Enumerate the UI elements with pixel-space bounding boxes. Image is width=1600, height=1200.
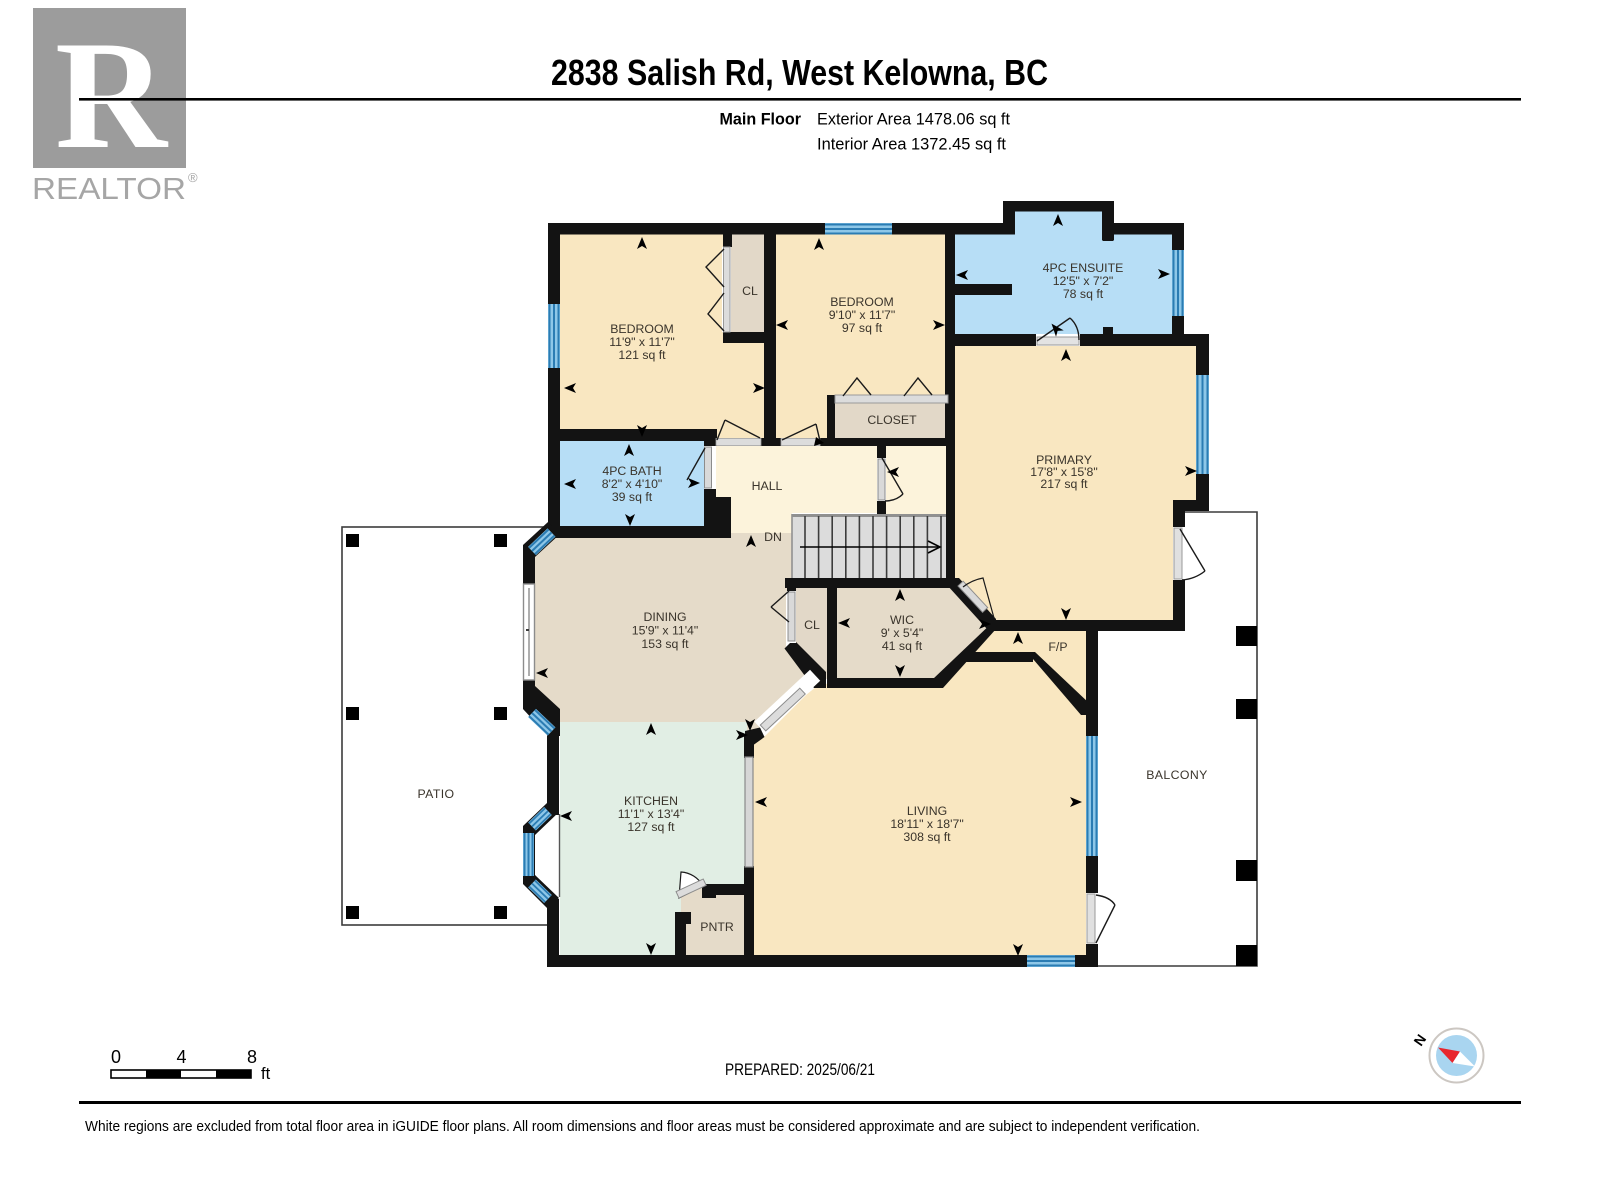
svg-text:DINING: DINING	[643, 610, 686, 624]
svg-text:HALL: HALL	[752, 479, 783, 493]
svg-text:LIVING: LIVING	[907, 804, 947, 818]
svg-text:97 sq ft: 97 sq ft	[842, 321, 883, 335]
svg-text:CLOSET: CLOSET	[867, 413, 917, 427]
svg-text:11'9" x 11'7": 11'9" x 11'7"	[609, 335, 675, 349]
svg-text:0: 0	[111, 1047, 121, 1067]
svg-text:BEDROOM: BEDROOM	[610, 322, 674, 336]
svg-text:153 sq ft: 153 sq ft	[641, 637, 689, 651]
svg-text:9' x 5'4": 9' x 5'4"	[881, 626, 924, 640]
svg-text:8: 8	[247, 1047, 257, 1067]
svg-text:PATIO: PATIO	[417, 787, 454, 801]
svg-text:R: R	[55, 9, 169, 181]
svg-text:8'2" x 4'10": 8'2" x 4'10"	[602, 477, 663, 491]
svg-text:4PC ENSUITE: 4PC ENSUITE	[1043, 261, 1124, 275]
svg-text:BALCONY: BALCONY	[1146, 768, 1208, 782]
svg-text:PREPARED: 2025/06/21: PREPARED: 2025/06/21	[725, 1061, 875, 1079]
svg-text:217 sq ft: 217 sq ft	[1040, 477, 1088, 491]
svg-text:2838 Salish Rd, West Kelowna,: 2838 Salish Rd, West Kelowna, BC	[551, 52, 1048, 93]
svg-text:4PC BATH: 4PC BATH	[602, 464, 661, 478]
svg-text:REALTOR: REALTOR	[32, 171, 186, 206]
svg-text:12'5" x 7'2": 12'5" x 7'2"	[1053, 274, 1114, 288]
svg-text:9'10" x 11'7": 9'10" x 11'7"	[829, 308, 896, 322]
svg-text:39 sq ft: 39 sq ft	[612, 490, 653, 504]
svg-text:121 sq ft: 121 sq ft	[618, 348, 666, 362]
svg-text:4: 4	[177, 1047, 187, 1067]
svg-text:18'11" x 18'7": 18'11" x 18'7"	[890, 817, 963, 831]
svg-text:BEDROOM: BEDROOM	[830, 295, 894, 309]
svg-text:CL: CL	[804, 618, 820, 632]
svg-text:KITCHEN: KITCHEN	[624, 794, 678, 808]
svg-text:®: ®	[188, 170, 198, 185]
svg-text:Interior Area 1372.45 sq ft: Interior Area 1372.45 sq ft	[817, 136, 1006, 154]
svg-text:78 sq ft: 78 sq ft	[1063, 287, 1104, 301]
svg-text:WIC: WIC	[890, 613, 914, 627]
svg-text:15'9" x 11'4": 15'9" x 11'4"	[632, 624, 699, 638]
svg-text:White regions are excluded fro: White regions are excluded from total fl…	[85, 1119, 1200, 1135]
svg-text:308 sq ft: 308 sq ft	[903, 830, 951, 844]
svg-text:DN: DN	[764, 530, 782, 544]
svg-text:41 sq ft: 41 sq ft	[882, 639, 923, 653]
svg-text:ft: ft	[261, 1065, 271, 1083]
svg-text:PNTR: PNTR	[700, 920, 734, 934]
svg-text:11'1" x 13'4": 11'1" x 13'4"	[618, 807, 685, 821]
svg-text:Main Floor: Main Floor	[720, 111, 802, 129]
svg-text:127 sq ft: 127 sq ft	[627, 820, 675, 834]
svg-text:Exterior Area 1478.06 sq ft: Exterior Area 1478.06 sq ft	[817, 111, 1010, 129]
svg-text:F/P: F/P	[1048, 640, 1067, 654]
svg-text:CL: CL	[742, 284, 758, 298]
